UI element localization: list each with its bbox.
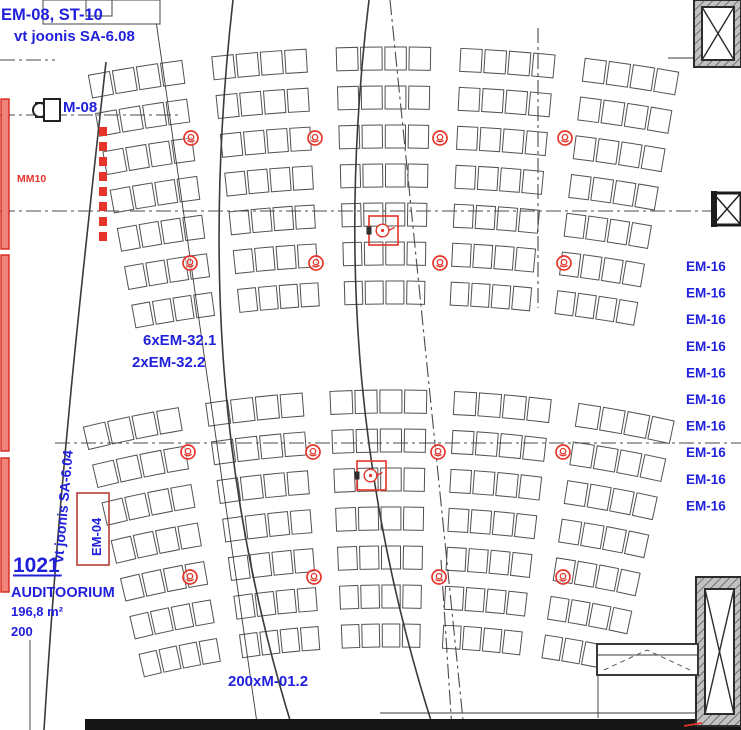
seat bbox=[361, 86, 382, 109]
seat bbox=[477, 166, 498, 190]
seat bbox=[470, 510, 491, 534]
speaker-symbol-icon bbox=[433, 256, 447, 270]
seat bbox=[403, 507, 423, 530]
seat bbox=[619, 142, 642, 168]
seat bbox=[276, 245, 296, 269]
seat bbox=[382, 624, 400, 647]
speaker-symbol-icon bbox=[183, 256, 197, 270]
seat bbox=[460, 48, 482, 72]
label-m08: M-08 bbox=[63, 99, 97, 116]
seat bbox=[407, 203, 426, 226]
seat bbox=[364, 203, 383, 226]
seat bbox=[450, 282, 469, 306]
seat bbox=[617, 569, 640, 595]
seat bbox=[647, 107, 671, 133]
seat bbox=[494, 246, 514, 270]
seat bbox=[264, 473, 287, 498]
seat bbox=[409, 47, 431, 70]
seat bbox=[380, 390, 402, 413]
seat bbox=[629, 223, 652, 249]
cable-tray-bar bbox=[1, 255, 9, 451]
seat bbox=[233, 249, 254, 274]
seat bbox=[152, 299, 173, 325]
seat bbox=[238, 288, 258, 313]
seat bbox=[273, 206, 294, 230]
speaker-symbol-icon bbox=[181, 445, 195, 459]
seat bbox=[564, 213, 586, 238]
seat bbox=[500, 168, 521, 192]
seat bbox=[624, 103, 648, 129]
seat bbox=[640, 455, 666, 482]
seat bbox=[245, 514, 267, 539]
seat bbox=[343, 242, 362, 266]
seat bbox=[136, 64, 161, 90]
seat bbox=[582, 58, 606, 83]
seat bbox=[408, 164, 428, 187]
label-room-capacity: 200 bbox=[11, 624, 33, 639]
seat bbox=[453, 392, 476, 416]
label-mm10: MM10 bbox=[17, 173, 46, 185]
seat bbox=[478, 393, 502, 418]
speaker-symbol-icon bbox=[184, 131, 198, 145]
seat bbox=[161, 60, 185, 86]
door-element bbox=[597, 644, 698, 675]
seat bbox=[247, 169, 269, 194]
seat bbox=[502, 129, 524, 154]
speaker-symbol-icon bbox=[556, 570, 570, 584]
seat bbox=[381, 546, 400, 569]
seat bbox=[220, 132, 242, 157]
seat bbox=[255, 247, 275, 272]
seat bbox=[502, 395, 526, 420]
seat bbox=[473, 471, 495, 495]
seat bbox=[361, 585, 380, 608]
label-vt-joonis-sa608: vt joonis SA-6.08 bbox=[14, 28, 135, 45]
label-room-name: AUDITOORIUM bbox=[11, 585, 115, 601]
label-em16-1: EM-16 bbox=[686, 259, 726, 274]
seat bbox=[234, 594, 255, 619]
seat bbox=[340, 585, 359, 609]
seat bbox=[117, 225, 140, 251]
seat bbox=[596, 565, 619, 591]
seat bbox=[110, 187, 133, 213]
seat bbox=[285, 49, 308, 73]
speaker-symbol-icon bbox=[307, 570, 321, 584]
seat bbox=[166, 99, 190, 125]
seat bbox=[527, 397, 551, 422]
seat bbox=[228, 555, 250, 580]
seat bbox=[295, 205, 315, 229]
seat bbox=[125, 264, 147, 290]
seat bbox=[287, 88, 309, 112]
seat bbox=[482, 628, 502, 653]
seat bbox=[508, 51, 531, 76]
seat bbox=[562, 638, 583, 664]
seat bbox=[280, 393, 304, 418]
label-200xm-01-2: 200xM-01.2 bbox=[228, 673, 308, 690]
seat bbox=[360, 546, 379, 569]
seat bbox=[622, 261, 644, 287]
seat bbox=[338, 547, 358, 571]
seat bbox=[403, 585, 422, 608]
speaker-symbol-icon bbox=[433, 131, 447, 145]
seat bbox=[268, 512, 290, 537]
label-em16-7: EM-16 bbox=[686, 419, 726, 434]
seat bbox=[255, 591, 276, 616]
seat bbox=[607, 219, 629, 245]
auditorium-plan-canvas: EM-08, ST-10vt joonis SA-6.08M-08MM106xE… bbox=[0, 0, 741, 730]
wall bbox=[85, 719, 741, 730]
seat bbox=[654, 69, 679, 95]
seat bbox=[518, 209, 539, 234]
seat bbox=[468, 549, 489, 573]
seat bbox=[408, 125, 429, 148]
seat bbox=[244, 130, 266, 155]
seat bbox=[591, 177, 614, 203]
label-em16-9: EM-16 bbox=[686, 472, 726, 487]
seat bbox=[251, 208, 272, 233]
seat bbox=[301, 627, 320, 651]
seat bbox=[564, 481, 588, 507]
seat bbox=[600, 407, 626, 433]
seat bbox=[403, 546, 422, 569]
seat bbox=[502, 630, 522, 655]
seat bbox=[569, 175, 591, 200]
seat bbox=[580, 255, 602, 280]
seat bbox=[149, 141, 172, 167]
seat bbox=[88, 71, 113, 97]
seat bbox=[632, 493, 657, 520]
cable-tray-dashed bbox=[99, 187, 107, 196]
label-6xem-32-1: 6xEM-32.1 bbox=[143, 332, 216, 349]
speaker-symbol-icon bbox=[431, 445, 445, 459]
seat bbox=[444, 586, 464, 610]
seat bbox=[489, 550, 510, 575]
seat bbox=[240, 91, 263, 116]
seat bbox=[514, 514, 536, 539]
seat bbox=[240, 475, 263, 500]
seat bbox=[287, 471, 309, 496]
seat bbox=[519, 475, 542, 500]
seat bbox=[83, 422, 110, 449]
seat bbox=[616, 300, 638, 326]
seat bbox=[458, 87, 480, 111]
seat bbox=[473, 244, 493, 268]
seat bbox=[570, 442, 594, 468]
seat bbox=[404, 390, 426, 413]
seat bbox=[280, 628, 300, 653]
seat bbox=[601, 100, 625, 126]
seat bbox=[465, 588, 485, 612]
seat bbox=[93, 460, 119, 487]
seat bbox=[471, 283, 490, 307]
cable-tray-dashed bbox=[99, 127, 107, 136]
seat bbox=[267, 128, 289, 152]
cable-tray-dashed bbox=[99, 157, 107, 166]
seat bbox=[292, 166, 313, 190]
seat bbox=[358, 507, 378, 530]
seat bbox=[596, 139, 619, 165]
seat bbox=[625, 531, 649, 558]
cable-tray-dashed bbox=[99, 232, 107, 241]
aisle-curve bbox=[44, 62, 106, 730]
seat bbox=[475, 205, 496, 229]
seat bbox=[448, 508, 469, 532]
seat bbox=[505, 90, 528, 115]
seat bbox=[450, 469, 472, 493]
seat bbox=[116, 455, 142, 482]
seat bbox=[139, 650, 161, 676]
seat bbox=[510, 552, 531, 577]
label-em16-4: EM-16 bbox=[686, 339, 726, 354]
seat bbox=[512, 286, 532, 311]
seat bbox=[332, 430, 354, 454]
seat bbox=[334, 468, 355, 492]
seat bbox=[617, 450, 642, 477]
seat bbox=[589, 603, 611, 629]
seat bbox=[635, 184, 658, 210]
seat bbox=[300, 283, 319, 307]
cable-tray-dashed bbox=[99, 142, 107, 151]
seat bbox=[199, 639, 220, 665]
seat bbox=[236, 52, 259, 77]
seat bbox=[404, 468, 425, 491]
seat bbox=[102, 498, 127, 525]
seat bbox=[596, 296, 617, 321]
seat bbox=[139, 221, 162, 247]
seat bbox=[290, 510, 312, 534]
seat bbox=[362, 624, 380, 647]
seat bbox=[272, 550, 293, 575]
seat bbox=[455, 165, 476, 189]
seat bbox=[279, 284, 299, 308]
seat bbox=[506, 591, 527, 616]
seat bbox=[157, 408, 183, 434]
seat bbox=[593, 446, 618, 472]
label-vt-joonis-sa604: vt joonis SA-6.04 bbox=[50, 449, 76, 563]
seat bbox=[475, 432, 498, 457]
speaker-symbol-icon bbox=[183, 570, 197, 584]
seat bbox=[624, 412, 650, 439]
seat bbox=[192, 600, 214, 626]
seat bbox=[235, 436, 259, 461]
floor-plan-page: EM-08, ST-10vt joonis SA-6.08M-08MM106xE… bbox=[0, 0, 741, 730]
seat bbox=[496, 473, 519, 498]
seat bbox=[559, 519, 582, 545]
seat bbox=[126, 145, 150, 171]
seat bbox=[150, 608, 173, 634]
seat bbox=[258, 286, 278, 311]
cable-tray-dashed bbox=[99, 172, 107, 181]
seat bbox=[142, 570, 165, 596]
seat bbox=[336, 508, 357, 532]
label-2xem-32-2: 2xEM-32.2 bbox=[132, 354, 205, 371]
seat bbox=[336, 47, 358, 71]
seat bbox=[260, 434, 283, 459]
seat bbox=[522, 170, 544, 195]
seat bbox=[171, 604, 193, 630]
seat bbox=[484, 50, 507, 74]
seat bbox=[240, 633, 260, 658]
seat bbox=[386, 281, 404, 304]
speaker-symbol-icon bbox=[306, 445, 320, 459]
seat bbox=[140, 450, 165, 477]
speaker-symbol-icon bbox=[556, 445, 570, 459]
label-em16-10: EM-16 bbox=[686, 498, 726, 513]
seat bbox=[231, 397, 256, 422]
cable-tray-bar bbox=[1, 458, 9, 592]
seat bbox=[344, 281, 363, 304]
speaker-symbol-icon bbox=[557, 256, 571, 270]
seat bbox=[179, 642, 201, 668]
seat bbox=[161, 218, 183, 244]
seat bbox=[386, 203, 405, 226]
seat bbox=[603, 527, 627, 553]
seat bbox=[159, 646, 181, 672]
seat bbox=[148, 489, 173, 516]
seat bbox=[229, 210, 250, 235]
seat bbox=[125, 493, 150, 520]
seat bbox=[225, 171, 247, 196]
seat bbox=[515, 247, 536, 272]
seat bbox=[294, 549, 315, 573]
seat bbox=[111, 536, 136, 563]
label-em16-5: EM-16 bbox=[686, 365, 726, 380]
seat bbox=[108, 417, 134, 444]
seat bbox=[555, 291, 576, 316]
seat bbox=[255, 395, 279, 420]
seat bbox=[355, 390, 377, 413]
seat bbox=[155, 180, 178, 206]
speaker-symbol-icon bbox=[308, 131, 322, 145]
seat bbox=[146, 260, 168, 286]
seat bbox=[442, 625, 461, 649]
seat bbox=[601, 258, 623, 284]
seat bbox=[284, 432, 307, 457]
seat bbox=[337, 86, 358, 110]
seat bbox=[276, 589, 296, 614]
seat bbox=[270, 167, 291, 191]
cable-tray-dashed bbox=[99, 217, 107, 226]
seat bbox=[260, 51, 283, 76]
label-em16-2: EM-16 bbox=[686, 286, 726, 301]
seat bbox=[341, 624, 359, 648]
seat bbox=[587, 484, 611, 510]
seat bbox=[404, 429, 426, 452]
seat bbox=[381, 468, 402, 491]
seat bbox=[212, 55, 236, 80]
label-em08-st10: EM-08, ST-10 bbox=[1, 6, 103, 24]
seat bbox=[613, 181, 636, 207]
seat bbox=[532, 53, 555, 78]
seat bbox=[362, 125, 382, 148]
speaker-symbol-icon bbox=[432, 570, 446, 584]
seat bbox=[482, 89, 504, 113]
seat bbox=[479, 127, 501, 151]
speaker-symbol-icon bbox=[558, 131, 572, 145]
seat bbox=[446, 547, 466, 571]
label-em16-3: EM-16 bbox=[686, 312, 726, 327]
seat bbox=[340, 164, 360, 188]
seat bbox=[173, 295, 194, 320]
seat bbox=[568, 600, 590, 626]
seat bbox=[486, 589, 506, 614]
seat bbox=[132, 302, 154, 328]
seat bbox=[121, 574, 145, 601]
seat bbox=[573, 136, 596, 161]
seat bbox=[385, 125, 405, 148]
seat bbox=[156, 527, 180, 553]
seat bbox=[648, 416, 674, 443]
seat bbox=[610, 488, 634, 514]
seat bbox=[548, 596, 570, 622]
cable-tray-bar bbox=[1, 99, 9, 249]
seat bbox=[380, 429, 401, 452]
seat bbox=[457, 126, 478, 150]
seat bbox=[453, 204, 473, 228]
seat bbox=[491, 285, 511, 309]
seat bbox=[528, 92, 551, 117]
seat bbox=[330, 391, 353, 415]
seat bbox=[407, 281, 425, 304]
seat bbox=[342, 203, 362, 227]
seat bbox=[263, 90, 285, 114]
seat bbox=[171, 485, 195, 511]
seat bbox=[523, 436, 547, 461]
label-em16-8: EM-16 bbox=[686, 445, 726, 460]
label-em04: EM-04 bbox=[89, 517, 104, 556]
seat bbox=[586, 216, 608, 241]
seat bbox=[641, 146, 665, 172]
seat bbox=[178, 523, 201, 549]
seat bbox=[132, 183, 155, 209]
seat bbox=[581, 523, 604, 549]
seat bbox=[385, 86, 406, 109]
seat bbox=[578, 97, 601, 122]
seat bbox=[133, 531, 157, 558]
label-em16-6: EM-16 bbox=[686, 392, 726, 407]
seat bbox=[385, 164, 405, 187]
label-room-area: 196,8 m² bbox=[11, 604, 64, 619]
cable-tray-dashed bbox=[99, 202, 107, 211]
seat bbox=[575, 403, 600, 429]
seat bbox=[574, 561, 597, 587]
seat bbox=[119, 106, 143, 132]
seat bbox=[452, 243, 472, 267]
seat bbox=[130, 612, 153, 639]
m08-device-icon bbox=[44, 99, 60, 121]
seat bbox=[409, 86, 430, 109]
seat bbox=[575, 293, 596, 318]
seat bbox=[525, 131, 547, 156]
seat bbox=[216, 93, 239, 118]
seat bbox=[499, 434, 522, 459]
seat bbox=[542, 635, 563, 660]
seat bbox=[630, 65, 655, 91]
seat bbox=[365, 281, 383, 304]
seat bbox=[112, 67, 137, 93]
seat bbox=[462, 626, 481, 650]
seat bbox=[297, 588, 317, 612]
seat bbox=[609, 607, 632, 633]
seat bbox=[606, 61, 630, 87]
seat bbox=[132, 412, 158, 439]
seat bbox=[363, 164, 383, 187]
seat bbox=[381, 507, 401, 530]
seat bbox=[492, 511, 514, 536]
speaker-symbol-icon bbox=[309, 256, 323, 270]
